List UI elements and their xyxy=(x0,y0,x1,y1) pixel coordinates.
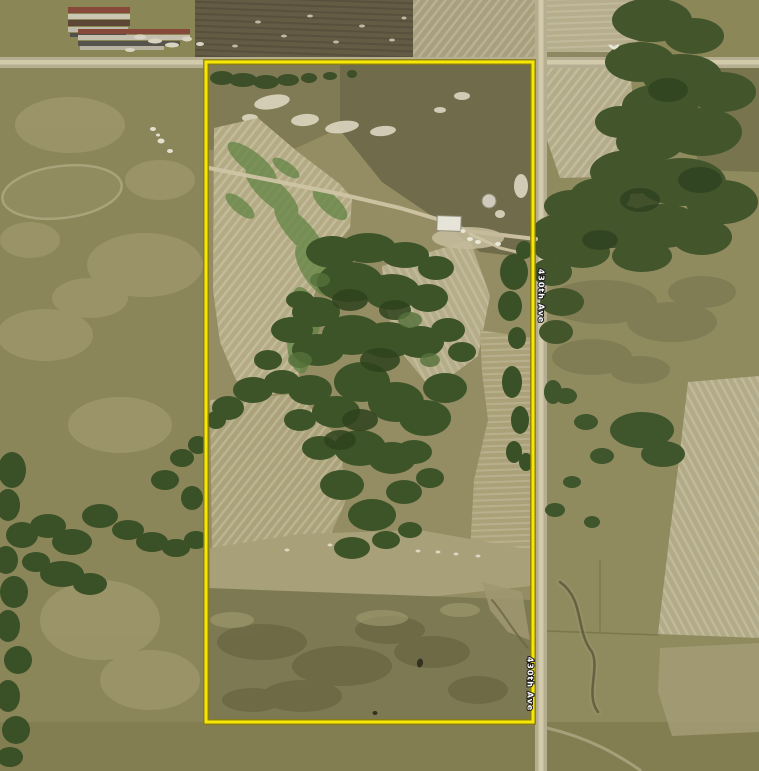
plowed-field-north-texture xyxy=(195,0,413,58)
barn-building xyxy=(437,216,462,232)
road-label-north: 430th Ave xyxy=(537,269,546,324)
aerial-map-svg: 430th Ave430th Ave xyxy=(0,0,759,771)
pasture-se xyxy=(658,643,759,736)
road-surface-vertical xyxy=(539,0,544,771)
pasture-south xyxy=(0,722,759,771)
aerial-map: 430th Ave430th Ave xyxy=(0,0,759,771)
map-layers: 430th Ave430th Ave xyxy=(0,0,759,771)
road-label-south: 430th Ave xyxy=(526,657,535,712)
grain-bin xyxy=(482,194,496,208)
stubble-field-north-texture xyxy=(413,0,536,58)
